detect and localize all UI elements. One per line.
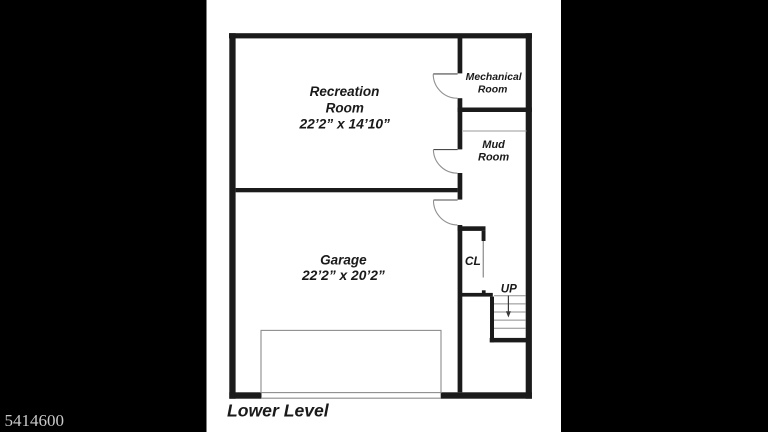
- svg-text:Room: Room: [478, 84, 507, 95]
- svg-text:22’2” x 14’10”: 22’2” x 14’10”: [298, 116, 390, 131]
- svg-text:Room: Room: [478, 152, 509, 164]
- svg-text:Recreation: Recreation: [310, 84, 380, 99]
- svg-text:22’2” x 20’2”: 22’2” x 20’2”: [301, 268, 385, 283]
- svg-text:Room: Room: [326, 100, 364, 115]
- svg-text:Lower Level: Lower Level: [227, 401, 330, 421]
- svg-text:CL: CL: [465, 254, 481, 268]
- svg-text:Mechanical: Mechanical: [466, 72, 523, 83]
- svg-text:Mud: Mud: [482, 139, 505, 151]
- svg-text:5414600: 5414600: [5, 411, 65, 430]
- svg-text:Garage: Garage: [320, 252, 367, 267]
- svg-text:UP: UP: [501, 282, 517, 295]
